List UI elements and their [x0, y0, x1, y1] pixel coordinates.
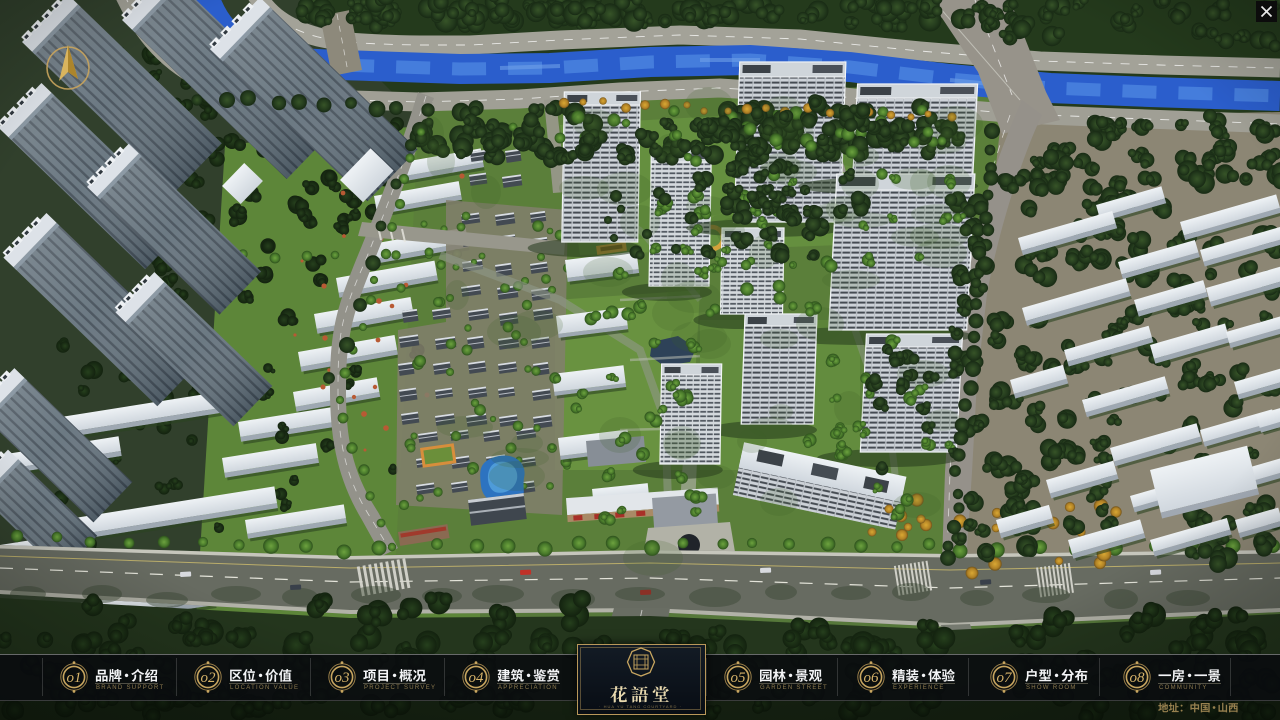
svg-text:o2: o2 [201, 670, 217, 686]
svg-text:o8: o8 [1130, 670, 1146, 686]
svg-text:o4: o4 [469, 670, 485, 686]
svg-text:o6: o6 [864, 670, 880, 686]
svg-text:o7: o7 [997, 670, 1014, 686]
svg-text:o5: o5 [731, 670, 747, 686]
svg-text:o1: o1 [67, 670, 82, 686]
svg-text:o3: o3 [335, 670, 350, 686]
